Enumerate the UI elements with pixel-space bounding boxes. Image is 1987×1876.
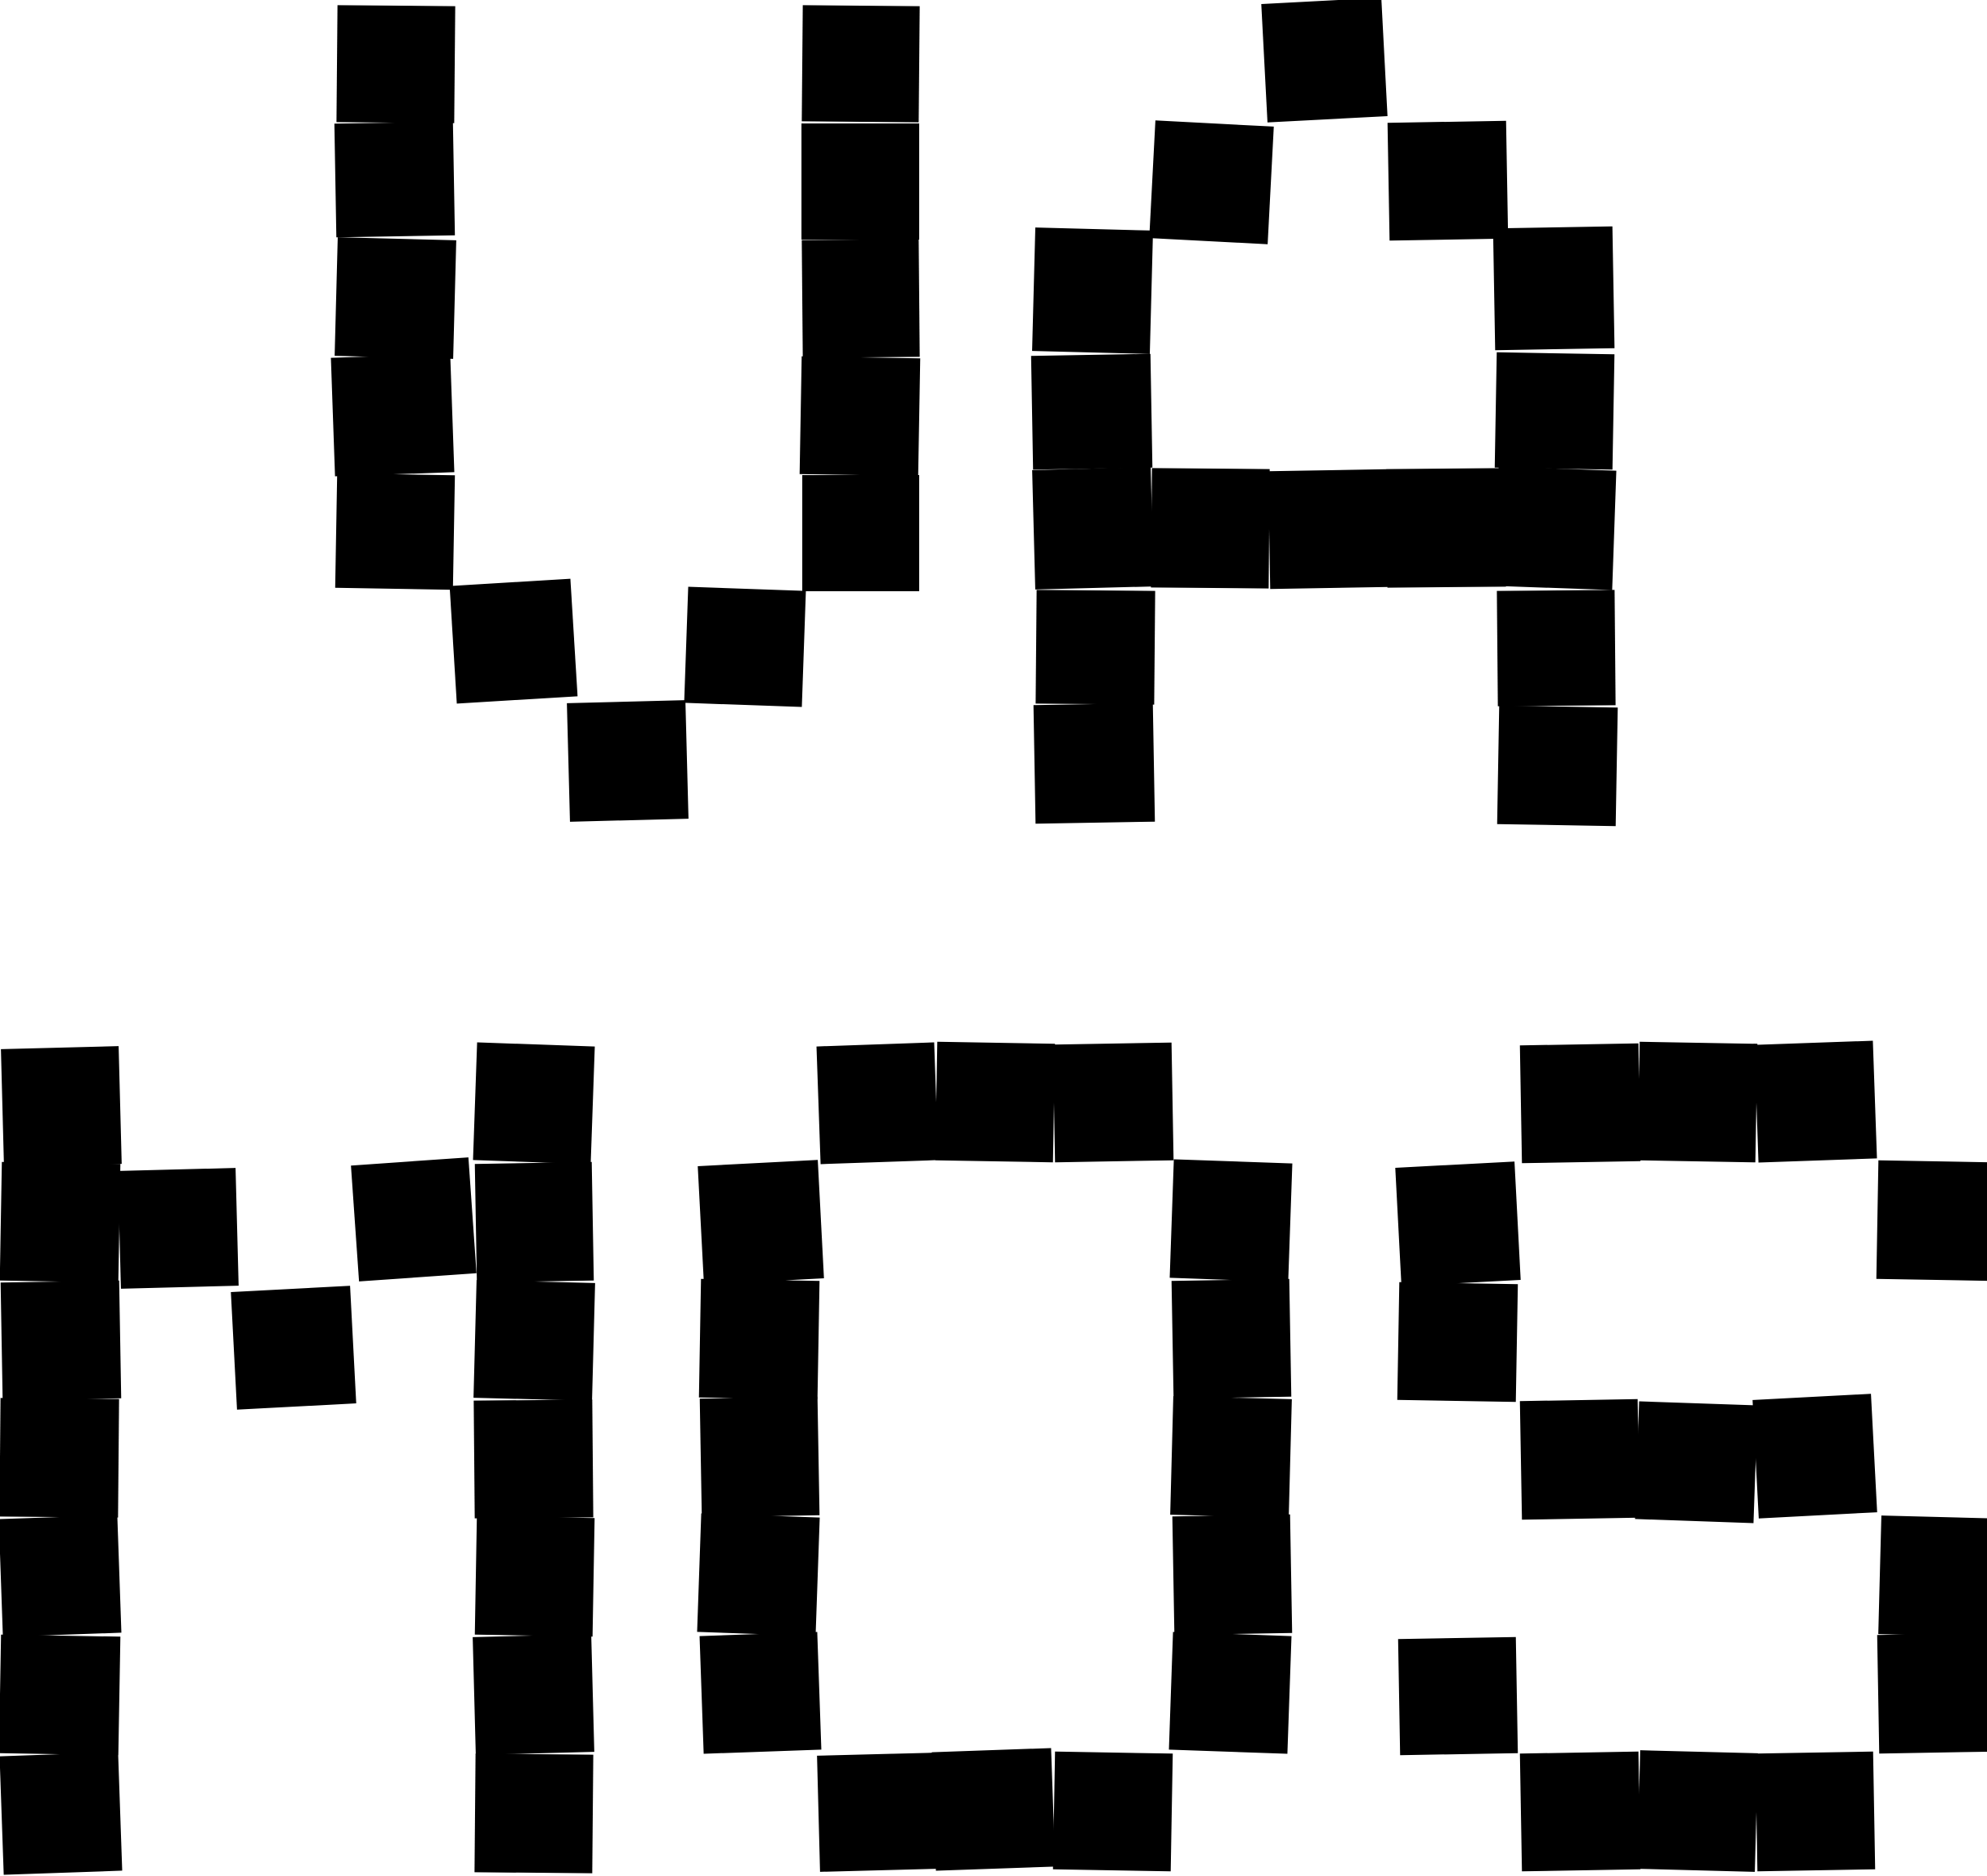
- collage-square-m-c1r1: [118, 1168, 239, 1289]
- collage-square-v-c2r6: [567, 700, 689, 822]
- collage-square-m-c0r6: [0, 1752, 123, 1874]
- collage-square-s-c3r6: [1756, 1752, 1876, 1872]
- collage-square-a-c4r2: [1493, 227, 1615, 351]
- collage-square-a-c0r6: [1034, 703, 1155, 824]
- collage-square-m-c4r3: [473, 1399, 593, 1518]
- collage-square-o-c4r5: [1169, 1632, 1292, 1753]
- collage-square-o-c0r5: [700, 1632, 822, 1754]
- collage-square-m-c0r5: [0, 1635, 120, 1756]
- collage-square-o-c0r3: [700, 1397, 820, 1518]
- collage-square-s-c1r6: [1520, 1752, 1641, 1872]
- collage-square-o-c3r0: [1053, 1043, 1174, 1163]
- collage-square-v-c4r2: [801, 239, 919, 357]
- collage-square-a-c3r1: [1388, 121, 1509, 241]
- collage-square-m-c3r1: [351, 1157, 477, 1282]
- collage-square-a-c3r4: [1386, 468, 1505, 587]
- collage-square-v-c4r0: [801, 5, 919, 122]
- collage-square-v-c0r0: [336, 5, 455, 123]
- collage-square-m-c4r4: [475, 1516, 595, 1637]
- collage-square-v-c4r3: [800, 357, 921, 477]
- collage-square-a-c2r0: [1261, 0, 1387, 123]
- collage-square-m-c2r2: [231, 1286, 356, 1409]
- collage-square-s-c0r1: [1395, 1161, 1520, 1286]
- collage-square-m-c4r1: [475, 1162, 594, 1282]
- collage-square-v-c3r5: [685, 587, 806, 707]
- collage-square-v-c0r1: [335, 122, 455, 238]
- collage-square-m-c0r0: [1, 1046, 122, 1167]
- collage-square-a-c0r5: [1035, 590, 1155, 704]
- collage-square-s-c2r3: [1635, 1401, 1758, 1523]
- collage-square-o-c0r1: [698, 1160, 823, 1285]
- collage-square-a-c0r2: [1032, 227, 1153, 354]
- collage-square-m-c4r5: [473, 1634, 594, 1755]
- collage-square-v-c0r2: [335, 237, 456, 359]
- collage-square-s-c0r5: [1398, 1637, 1518, 1756]
- collage-square-m-c0r4: [0, 1515, 121, 1636]
- collage-square-o-c4r2: [1172, 1279, 1292, 1399]
- collage-square-s-c4r1: [1877, 1161, 1987, 1282]
- collage-square-a-c1r1: [1149, 120, 1273, 244]
- collage-square-m-c4r6: [474, 1753, 593, 1873]
- collage-square-v-c0r4: [335, 473, 455, 590]
- collage-square-v-c1r5: [450, 579, 578, 704]
- collage-square-s-c4r5: [1877, 1633, 1987, 1754]
- collage-square-s-c3r0: [1755, 1040, 1877, 1162]
- collage-square-v-c4r1: [801, 123, 919, 240]
- collage-square-a-c0r3: [1031, 354, 1152, 470]
- collage-square-s-c2r0: [1638, 1042, 1758, 1163]
- collage-square-a-c0r4: [1032, 467, 1154, 590]
- collage-square-v-c4r4: [802, 475, 919, 591]
- collage-square-o-c2r0: [935, 1042, 1056, 1163]
- collage-square-a-c4r6: [1497, 706, 1618, 827]
- collage-square-m-c4r0: [473, 1043, 595, 1165]
- collage-square-o-c4r4: [1173, 1515, 1293, 1636]
- collage-square-a-c2r4: [1268, 469, 1389, 590]
- collage-square-o-c4r1: [1169, 1159, 1292, 1282]
- collage-square-s-c1r3: [1520, 1399, 1640, 1520]
- collage-square-o-c1r0: [817, 1043, 939, 1165]
- collage-square-m-c0r3: [0, 1398, 119, 1517]
- collage-square-a-c4r3: [1495, 352, 1614, 470]
- collage-square-o-c3r6: [1053, 1752, 1173, 1872]
- collage-square-s-c1r0: [1520, 1044, 1641, 1164]
- artwork-word: VAMOS: [0, 17, 1, 18]
- collage-square-s-c3r3: [1752, 1394, 1877, 1518]
- collage-square-a-c4r4: [1494, 467, 1616, 590]
- collage-square-m-c0r1: [0, 1162, 120, 1283]
- collage-square-s-c0r2: [1397, 1282, 1518, 1403]
- collage-square-o-c0r2: [699, 1279, 820, 1400]
- collage-square-a-c4r5: [1497, 590, 1615, 706]
- collage-square-m-c4r2: [473, 1280, 595, 1401]
- collage-square-o-c1r6: [817, 1753, 938, 1872]
- collage-square-s-c2r6: [1637, 1750, 1758, 1872]
- collage-square-s-c4r4: [1878, 1515, 1987, 1637]
- collage-square-m-c0r2: [1, 1281, 122, 1401]
- collage-square-o-c0r4: [697, 1513, 819, 1636]
- collage-square-o-c2r6: [931, 1748, 1055, 1870]
- collage-square-o-c4r3: [1170, 1396, 1292, 1518]
- collage-square-a-c1r4: [1151, 468, 1269, 588]
- vamos-collage-artwork: VAMOS: [0, 0, 1987, 1876]
- collage-square-v-c0r3: [330, 353, 454, 476]
